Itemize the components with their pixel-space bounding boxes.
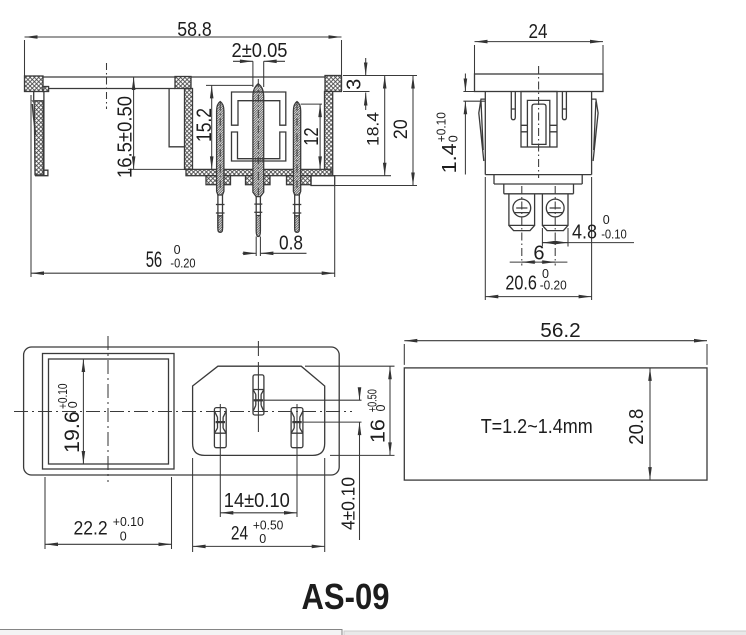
svg-text:58.8: 58.8 — [177, 19, 212, 41]
svg-text:4±0.10: 4±0.10 — [339, 477, 359, 530]
svg-text:0: 0 — [66, 401, 80, 408]
svg-text:-0.10: -0.10 — [601, 227, 627, 241]
svg-text:+0.10: +0.10 — [113, 515, 144, 529]
svg-text:1.4: 1.4 — [439, 143, 461, 173]
svg-text:+0.50: +0.50 — [253, 519, 284, 533]
svg-text:0: 0 — [447, 135, 461, 142]
svg-text:4.8: 4.8 — [572, 222, 597, 244]
svg-text:15.2: 15.2 — [193, 108, 216, 142]
svg-text:20: 20 — [390, 119, 412, 139]
svg-text:56.2: 56.2 — [540, 320, 581, 342]
svg-text:AS-09: AS-09 — [302, 576, 390, 617]
svg-text:20.8: 20.8 — [626, 409, 648, 445]
svg-text:0: 0 — [259, 532, 266, 546]
svg-text:22.2: 22.2 — [74, 519, 108, 540]
svg-text:-0.20: -0.20 — [170, 256, 195, 270]
svg-text:16: 16 — [368, 419, 390, 443]
svg-text:6: 6 — [533, 243, 544, 265]
svg-text:T=1.2~1.4mm: T=1.2~1.4mm — [481, 416, 593, 438]
svg-text:19.6: 19.6 — [61, 411, 84, 453]
svg-text:14±0.10: 14±0.10 — [224, 490, 290, 512]
svg-text:24: 24 — [231, 523, 249, 544]
svg-text:0.8: 0.8 — [279, 232, 303, 254]
svg-text:0: 0 — [374, 405, 388, 412]
svg-text:24: 24 — [529, 21, 548, 43]
svg-text:16.5±0.50: 16.5±0.50 — [115, 96, 137, 178]
svg-text:56: 56 — [146, 247, 163, 272]
svg-text:2±0.05: 2±0.05 — [232, 40, 288, 62]
svg-text:12: 12 — [301, 127, 323, 145]
svg-text:18.4: 18.4 — [364, 112, 383, 146]
svg-text:20.6: 20.6 — [505, 272, 537, 294]
svg-text:0: 0 — [603, 213, 610, 227]
svg-text:0: 0 — [120, 529, 127, 543]
svg-text:-0.20: -0.20 — [540, 278, 567, 292]
svg-text:0: 0 — [174, 243, 181, 257]
svg-text:3: 3 — [344, 79, 366, 90]
